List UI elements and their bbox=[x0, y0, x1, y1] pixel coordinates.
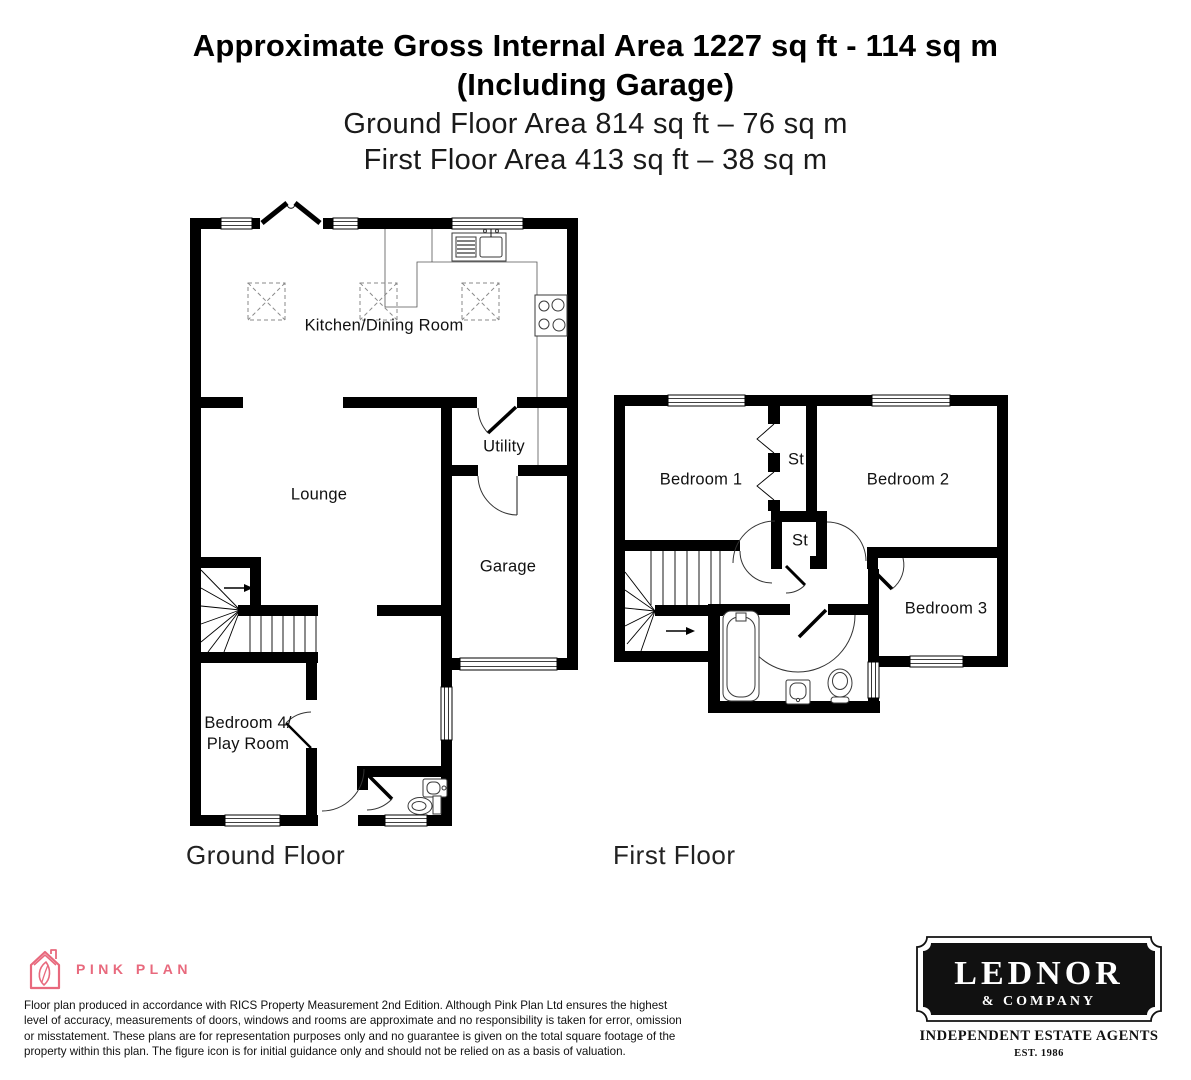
room-label-storage-middle: St bbox=[792, 531, 808, 552]
door-utility-to-garage bbox=[478, 476, 517, 515]
lednor-company: & COMPANY bbox=[982, 994, 1096, 1009]
bay-entrance-doors bbox=[262, 203, 320, 223]
window bbox=[452, 218, 523, 229]
lednor-established: EST. 1986 bbox=[916, 1048, 1162, 1059]
door-wc bbox=[367, 774, 392, 810]
window bbox=[910, 656, 963, 667]
sink-icon bbox=[452, 229, 506, 261]
window bbox=[385, 815, 427, 826]
disclaimer-text: Floor plan produced in accordance with R… bbox=[24, 998, 692, 1060]
room-label-bedroom4-line1: Bedroom 4/ bbox=[204, 713, 291, 734]
lednor-name: LEDNOR bbox=[954, 955, 1123, 992]
window bbox=[872, 395, 950, 406]
ground-floor-title: Ground Floor bbox=[186, 840, 345, 871]
door-bedroom2 bbox=[827, 522, 866, 561]
wc-sink-icon bbox=[423, 779, 447, 797]
stairs-direction-arrow bbox=[666, 627, 695, 635]
garage-door bbox=[460, 658, 557, 670]
room-label-lounge: Lounge bbox=[291, 485, 347, 506]
floorplan-drawing bbox=[0, 0, 1191, 1080]
room-label-storage-top: St bbox=[788, 450, 804, 471]
room-label-garage: Garage bbox=[480, 557, 536, 578]
hob-icon bbox=[535, 295, 567, 336]
room-label-utility: Utility bbox=[483, 437, 525, 458]
pink-plan-brand: PINK PLAN bbox=[76, 961, 192, 977]
first-floor-plan bbox=[614, 395, 1008, 713]
door-bedroom1 bbox=[733, 521, 775, 583]
room-label-kitchen-dining: Kitchen/Dining Room bbox=[305, 316, 464, 337]
window bbox=[333, 218, 358, 229]
pink-plan-house-icon bbox=[24, 946, 66, 992]
window bbox=[668, 395, 745, 406]
room-label-bedroom3: Bedroom 3 bbox=[905, 599, 988, 620]
room-label-bedroom1: Bedroom 1 bbox=[660, 470, 743, 491]
door-storage-cupboard bbox=[786, 566, 805, 593]
floorplan-page: Approximate Gross Internal Area 1227 sq … bbox=[0, 0, 1191, 1080]
stairs-direction-arrow bbox=[224, 584, 253, 592]
window bbox=[221, 218, 252, 229]
kitchen-counter bbox=[385, 229, 538, 465]
lednor-tagline: INDEPENDENT ESTATE AGENTS bbox=[916, 1028, 1162, 1045]
first-floor-title: First Floor bbox=[613, 840, 736, 871]
room-label-bedroom2: Bedroom 2 bbox=[867, 470, 950, 491]
bathroom-sink-icon bbox=[786, 680, 810, 704]
door-kitchen-to-utility bbox=[478, 407, 516, 433]
staircase bbox=[625, 551, 720, 651]
room-label-bedroom4-line2: Play Room bbox=[204, 734, 291, 755]
lednor-logo: LEDNOR & COMPANY bbox=[916, 936, 1162, 1022]
window bbox=[868, 662, 879, 698]
bath-icon bbox=[723, 611, 759, 701]
bathroom-toilet-icon bbox=[828, 669, 852, 703]
wc-toilet-icon bbox=[408, 796, 441, 815]
room-label-bedroom4-playroom: Bedroom 4/ Play Room bbox=[204, 713, 291, 755]
window bbox=[441, 687, 452, 740]
window bbox=[225, 815, 280, 826]
ceiling-light-symbol bbox=[248, 283, 499, 320]
